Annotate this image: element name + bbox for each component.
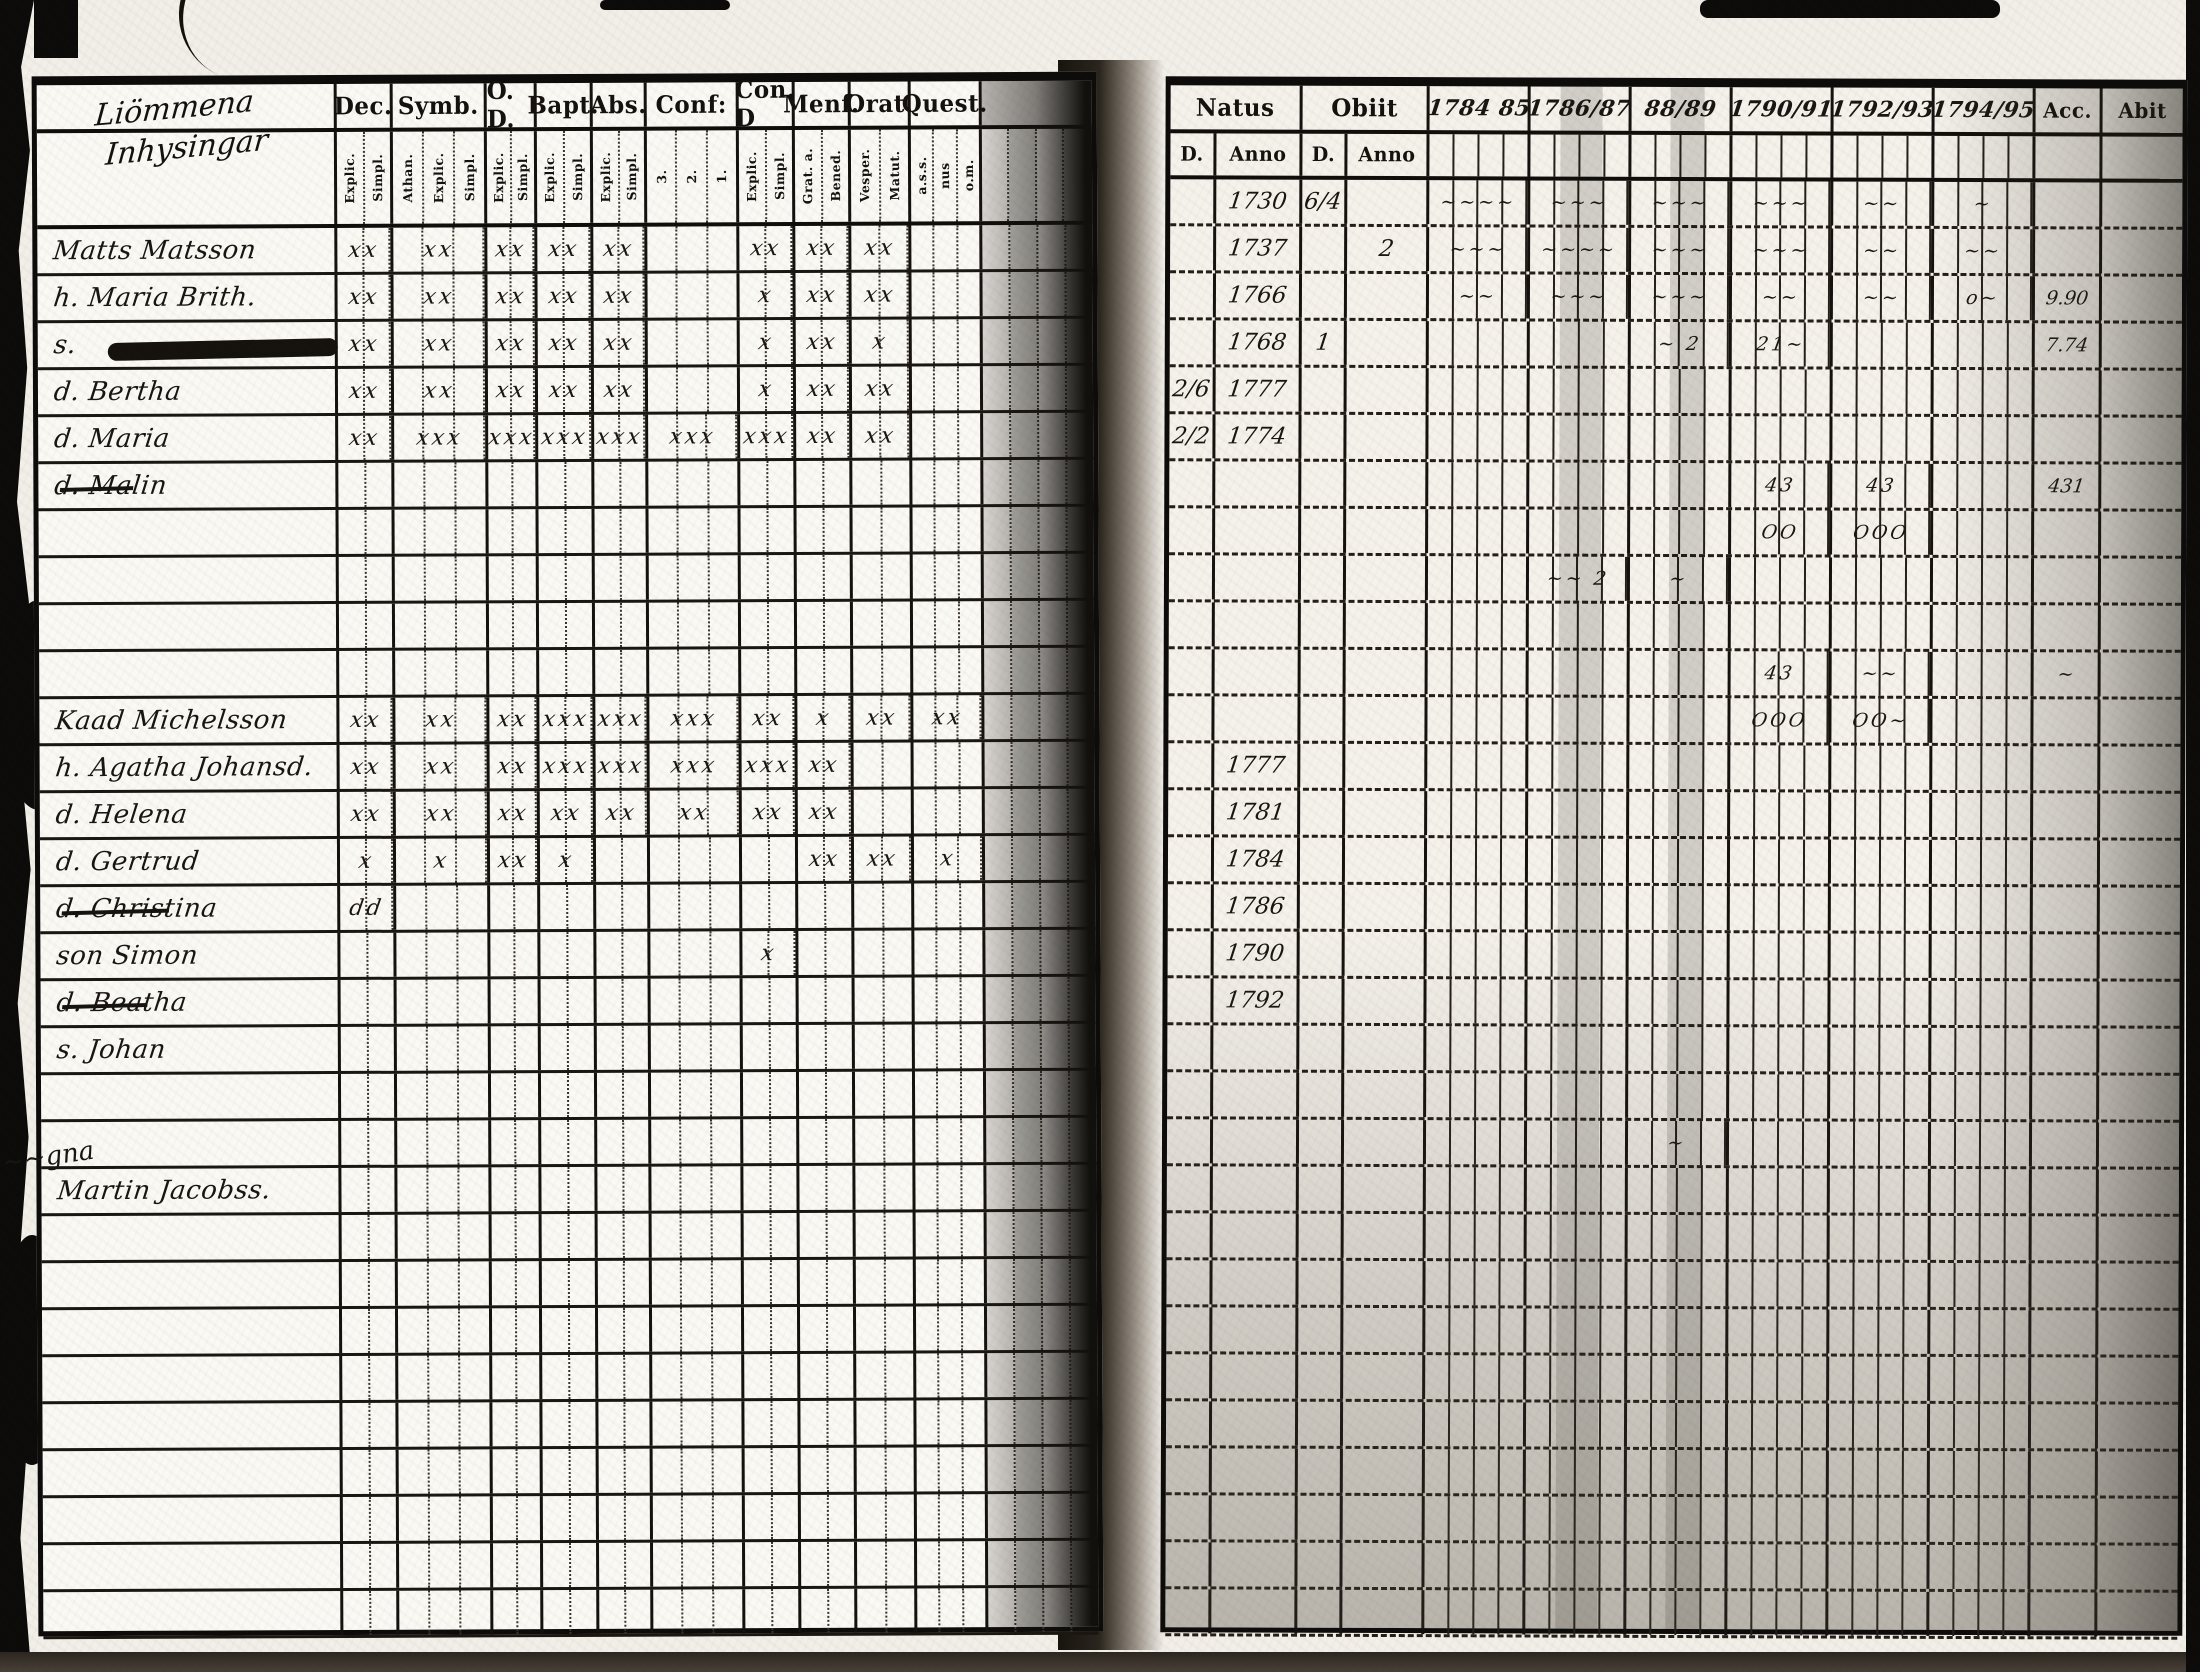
attendance-mark: x <box>736 273 796 317</box>
subcolumn-line <box>683 1401 714 1445</box>
edge-strip-row <box>987 1259 1097 1303</box>
obiit-year-cell <box>1345 838 1427 882</box>
register-row: 4343431 <box>1169 461 2181 512</box>
year-subcolumn-line <box>1529 462 1554 506</box>
year-subcolumn-line <box>1653 1168 1678 1212</box>
mark-cell-group <box>598 1355 652 1399</box>
column-label: Quest. <box>902 89 988 118</box>
communion-mark: ∼ <box>1626 557 1731 601</box>
mark-cell-group <box>857 1447 917 1491</box>
subcolumn-line <box>366 510 392 554</box>
year-subcolumn-line <box>2005 1404 2028 1448</box>
mark-cell-group: xx <box>796 320 852 364</box>
subcolumn-line <box>493 1496 518 1540</box>
natus-day-cell <box>1170 273 1216 317</box>
mark-cell-group: xx <box>490 791 540 835</box>
year-subcolumn-line <box>1907 417 1930 461</box>
edge-strip-cell <box>982 225 1010 269</box>
date-value: 2 <box>1378 236 1396 262</box>
year-subcolumn-line <box>1479 321 1504 365</box>
year-subcolumn-line <box>1957 793 1982 837</box>
subcolumn-line <box>341 980 369 1024</box>
year-subcolumn-line <box>1653 980 1678 1024</box>
mark-cell-group <box>542 1355 598 1399</box>
year-subcolumn-line <box>1677 1497 1702 1541</box>
register-row: d. Helenaxxxxxxxxxxxxxxxx <box>40 789 1095 841</box>
year-subcolumn-line <box>1729 1074 1754 1118</box>
obiit-day-cell <box>1299 1120 1344 1164</box>
year-mark-group <box>1526 1308 1627 1352</box>
subcolumn-line <box>515 932 538 976</box>
subcolumn-group: Explic.Simpl. <box>739 130 795 222</box>
subcolumn-line <box>543 1590 571 1634</box>
year-subcolumn-line <box>1754 1168 1779 1212</box>
mark-cell-group <box>342 1309 398 1353</box>
natus-year-cell <box>1215 555 1301 599</box>
subcolumn-line <box>740 461 768 505</box>
subcolumn-group: Vesper.Matut. <box>851 129 911 221</box>
natus-day-cell <box>1168 696 1214 740</box>
year-subcolumn-line <box>1680 463 1705 507</box>
year-mark-group <box>1932 746 2033 790</box>
subcolumn-label: Vesper. <box>857 149 872 203</box>
year-subcolumn-line <box>1576 1356 1601 1400</box>
subcolumn-line <box>885 1306 913 1350</box>
mark-cell-group <box>394 462 488 506</box>
subcolumn-line <box>826 1025 852 1069</box>
mark-cell-group <box>650 837 742 881</box>
year-subcolumn-line <box>1428 603 1453 647</box>
year-subcolumn-line <box>1856 934 1881 978</box>
natus-year-cell: 1792 <box>1213 978 1299 1022</box>
year-subcolumn-line <box>1678 1074 1703 1118</box>
attendance-mark: xx <box>794 743 854 787</box>
register-row: d. Berthaxxxxxxxxxxxxxxx <box>38 366 1093 418</box>
year-subcolumn-line <box>1627 1309 1652 1353</box>
register-row <box>1166 1495 2178 1546</box>
year-subcolumn-line <box>1527 1073 1552 1117</box>
year-subcolumn-line <box>1856 793 1881 837</box>
subcolumn-line <box>769 837 795 881</box>
subcolumn-line <box>488 509 513 553</box>
subcolumn-line <box>597 979 624 1023</box>
mark-cell-group <box>648 367 740 411</box>
year-subcolumn-line <box>1451 1120 1476 1164</box>
year-subcolumn-line <box>1451 1167 1476 1211</box>
edge-strip-cell <box>1039 413 1067 457</box>
subcolumn-line <box>571 1543 597 1587</box>
edge-strip-row <box>987 1306 1097 1350</box>
year-subcolumn-line <box>1830 1075 1855 1119</box>
mark-cell-group <box>542 1214 598 1258</box>
subcolumn-line <box>457 556 486 600</box>
year-subcolumn-line <box>1603 745 1626 789</box>
subcolumn-line <box>683 1495 714 1539</box>
obiit-year-cell <box>1345 791 1427 835</box>
year-mark-group <box>1530 321 1631 365</box>
obiit-year-cell <box>1346 509 1428 553</box>
subcolumn-line <box>396 886 427 930</box>
subcolumn-line <box>597 1026 624 1070</box>
year-mark-group <box>1428 415 1529 459</box>
subcolumn-line <box>713 1448 742 1492</box>
subcolumn-line <box>856 1307 886 1351</box>
subcolumn-line <box>596 932 623 976</box>
year-subcolumn-line <box>1983 417 2008 461</box>
year-subcolumn-line <box>1704 839 1727 883</box>
register-row: OOOOO∼ <box>1168 696 2180 747</box>
edge-strip-cell <box>1011 460 1039 504</box>
year-subcolumn-line <box>1451 979 1476 1023</box>
mark-cell-group <box>341 1168 397 1212</box>
year-subcolumn-line <box>1680 416 1705 460</box>
year-subcolumn-line <box>1576 1450 1601 1494</box>
year-mark-group <box>1529 650 1630 694</box>
subcolumn-line <box>539 650 567 694</box>
year-subcolumn-line <box>1879 1498 1904 1542</box>
mark-cell-group <box>543 1543 599 1587</box>
year-mark-group: OOO <box>1832 511 1933 555</box>
subcolumn-line <box>541 979 569 1023</box>
subcolumn-line <box>963 1353 985 1397</box>
person-name: d. Malin <box>53 471 169 502</box>
register-row: d. Malin <box>38 460 1093 512</box>
year-subcolumn-line <box>1730 886 1755 930</box>
subcolumn-line <box>828 1354 854 1398</box>
year-mark-group <box>1728 1450 1829 1494</box>
acc-label: Acc. <box>2043 98 2092 123</box>
subcolumn-line <box>624 1308 649 1352</box>
subcolumn-line <box>517 1449 540 1493</box>
mark-cell-group <box>649 649 741 693</box>
year-subcolumn-line <box>1679 886 1704 930</box>
subcolumn-line <box>542 1261 570 1305</box>
year-mark-group: OOO <box>1730 698 1831 742</box>
edge-strip-cell <box>987 1353 1015 1397</box>
mark-cell-group <box>539 603 595 647</box>
mark-cell-group: xx <box>489 697 539 741</box>
row-name-cell: d. Helena <box>40 792 340 837</box>
mark-cell-group <box>648 461 740 505</box>
acc-head: Acc. <box>2036 88 2103 132</box>
year-subcolumn-line <box>1428 556 1453 600</box>
mark-cell-group <box>916 1353 987 1397</box>
year-subcolumn-line <box>1956 1028 1981 1072</box>
register-row <box>42 1212 1097 1264</box>
year-subcolumn-line <box>2007 887 2030 931</box>
year-subcolumn-line <box>1779 1027 1804 1071</box>
year-subcolumn-line <box>1854 1357 1879 1401</box>
subcolumn-line <box>939 1165 963 1209</box>
year-subcolumn-line <box>1475 1496 1500 1540</box>
subcolumn-head: Explic. <box>337 132 365 224</box>
natus-year-cell <box>1212 1260 1298 1304</box>
attendance-mark: xx <box>738 790 798 834</box>
mark-cell-group <box>648 508 740 552</box>
subcolumn-line <box>515 885 538 929</box>
year-subcolumn-line <box>1777 1544 1802 1588</box>
edge-strip-cell <box>1069 883 1095 927</box>
year-mark-group: 43 <box>1832 464 1933 508</box>
year-subcolumn-line <box>1652 1309 1677 1353</box>
mark-cell-group: xx <box>741 696 797 740</box>
year-subcolumn-line <box>1601 1450 1624 1494</box>
abit-cell <box>2100 887 2180 931</box>
year-subcolumn-line <box>1778 1403 1803 1447</box>
subcolumn-line <box>935 413 959 457</box>
subcolumn-line <box>796 461 824 505</box>
person-name: Kaad Michelsson <box>54 705 289 736</box>
attendance-mark: xx <box>336 745 396 789</box>
acc-cell: 9.90 <box>2035 276 2102 320</box>
year-subcolumn-line <box>1879 1451 1904 1495</box>
subcolumn-line <box>651 1120 682 1164</box>
subcolumn-line <box>853 602 883 646</box>
date-value: 1781 <box>1225 799 1287 825</box>
year-subcolumn-line <box>1604 510 1627 554</box>
subcolumn-line <box>855 1166 885 1210</box>
year-subcolumn-line <box>1553 792 1578 836</box>
year-subcolumn-line <box>1958 652 1983 696</box>
subcolumn-line <box>770 1072 796 1116</box>
communion-mark: OO∼ <box>1828 699 1933 743</box>
subcolumn-line <box>430 1543 461 1587</box>
edge-strip-cell <box>987 1259 1015 1303</box>
communion-mark: ∼∼∼ <box>1527 181 1632 225</box>
year-mark-group <box>1728 1356 1829 1400</box>
year-subcolumn-line <box>1651 1591 1676 1635</box>
subcolumn-head: Bened. <box>822 130 848 222</box>
edge-strip-cell <box>1043 1400 1071 1444</box>
mark-cell-group <box>745 1589 801 1633</box>
year-subcolumn-line <box>1702 1497 1725 1541</box>
year-label: 1794/95 <box>1930 97 2037 123</box>
year-mark-group <box>1930 1263 2031 1307</box>
subcolumn-group: 3.2.1. <box>647 130 739 222</box>
abit-cell <box>2097 1545 2177 1589</box>
year-mark-group <box>1627 1262 1728 1306</box>
mark-cell-group: xx <box>594 368 648 412</box>
year-subcolumn-line <box>1580 322 1605 366</box>
mark-cell-group <box>543 1590 599 1634</box>
mark-cell-group <box>493 1496 543 1540</box>
year-subcolumn-line <box>1704 698 1727 742</box>
subcolumn-line <box>710 602 739 646</box>
year-subcolumn-line <box>1804 980 1827 1024</box>
year-subcolumn-line <box>1701 1591 1724 1635</box>
year-subcolumn-line <box>1500 1449 1523 1493</box>
year-subcolumn-line <box>1477 838 1502 882</box>
mark-cell-group <box>743 1025 799 1069</box>
year-subcolumn-line <box>1679 792 1704 836</box>
year-subcolumn-line <box>1754 980 1779 1024</box>
mark-cell-group: xx <box>396 791 490 835</box>
year-mark-group <box>1426 1167 1527 1211</box>
year-mark-group <box>1525 1543 1626 1587</box>
subcolumn-line <box>430 1590 461 1634</box>
subcolumn-line <box>914 742 938 786</box>
subcolumn-line <box>828 1448 854 1492</box>
edge-strip-cell <box>1043 1259 1071 1303</box>
subcolumn-line <box>460 1261 489 1305</box>
mark-cell-group <box>911 225 982 269</box>
year-subcolumn-line <box>1957 746 1982 790</box>
year-subcolumn-line <box>1854 1310 1879 1354</box>
mark-cell-group: xx <box>851 225 911 269</box>
date-value: 6/4 <box>1303 189 1343 215</box>
edge-strip-row <box>983 507 1093 551</box>
year-mark-group <box>1530 368 1631 412</box>
subcolumn-line <box>566 556 592 600</box>
mark-cell-group <box>653 1448 745 1492</box>
subcolumn-line <box>343 1497 371 1541</box>
year-mark-group <box>1729 1121 1830 1165</box>
communion-mark: 43 <box>1727 651 1832 695</box>
year-subcolumn-head <box>1732 135 1757 177</box>
obiit-day-cell <box>1298 1402 1343 1446</box>
subcolumn-group: Explic.Simpl. <box>593 131 647 223</box>
mark-cell-group: xxx <box>649 696 741 740</box>
year-subcolumn-line <box>1982 887 2007 931</box>
year-mark-group <box>1931 1028 2032 1072</box>
year-subcolumn-line <box>1828 1545 1853 1589</box>
year-subcolumn-line <box>1906 840 1929 884</box>
subcolumn-line <box>343 1450 371 1494</box>
year-subcolumn-line <box>1627 1403 1652 1447</box>
edge-strip-cell <box>987 1306 1015 1350</box>
mark-cell-group <box>343 1591 399 1635</box>
year-subcolumn-line <box>1755 933 1780 977</box>
subcolumn-line <box>369 1168 395 1212</box>
attendance-mark: xx <box>392 791 490 835</box>
attendance-mark: xxx <box>591 415 649 459</box>
obiit-day-cell <box>1300 791 1345 835</box>
edge-strip-cell <box>1016 1541 1044 1585</box>
mark-cell-group <box>542 1402 598 1446</box>
year-subcolumn-line <box>1653 1074 1678 1118</box>
mark-cell-group <box>917 1541 988 1585</box>
year-mark-group <box>1933 605 2034 649</box>
subcolumn-line <box>652 1308 683 1352</box>
mark-cell-group <box>800 1213 856 1257</box>
year-subcolumn-line <box>1630 604 1655 648</box>
year-subcolumn-line <box>1627 1262 1652 1306</box>
subcolumn-line <box>540 885 568 929</box>
year-subcolumn-line <box>1428 462 1453 506</box>
row-name-cell: d. Christina <box>40 886 340 931</box>
obiit-year-cell <box>1343 1308 1425 1352</box>
edge-strip-cell <box>986 977 1014 1021</box>
edge-strip-cell <box>1039 366 1067 410</box>
year-subcolumn-line <box>1956 981 1981 1025</box>
edge-strip-cell <box>1039 319 1067 363</box>
attendance-mark: xx <box>792 320 852 364</box>
subcolumn-line <box>340 933 368 977</box>
obiit-day-cell <box>1302 274 1347 318</box>
year-mark-group <box>1731 416 1832 460</box>
attendance-mark: xx <box>738 696 798 740</box>
subcolumn-line <box>648 509 679 553</box>
year-subcolumn-line <box>1779 1074 1804 1118</box>
year-subcolumn-line <box>2007 746 2030 790</box>
acc-cell <box>2031 1404 2098 1448</box>
edge-strip-cell <box>985 930 1013 974</box>
date-value: 1737 <box>1227 235 1289 261</box>
natus-day-cell <box>1167 1072 1213 1116</box>
subcolumn-line <box>621 462 646 506</box>
subcolumn-line <box>882 461 910 505</box>
mark-cell-group <box>797 602 853 646</box>
year-subcolumn-line <box>1626 1591 1651 1635</box>
mark-cell-group <box>342 1356 398 1400</box>
subcolumn-line <box>827 1260 853 1304</box>
year-subcolumn-line <box>1502 885 1525 929</box>
subcolumn-line <box>541 1073 569 1117</box>
subcolumn-line <box>541 1120 569 1164</box>
subcolumn-line <box>338 463 366 507</box>
year-subcolumn-line <box>1528 791 1553 835</box>
mark-cell-group <box>651 978 743 1022</box>
year-subcolumn-line <box>1727 1544 1752 1588</box>
year-subcolumn-line <box>1958 417 1983 461</box>
year-subcolumn-line <box>1478 650 1503 694</box>
register-row: d. Gertrudxxxxxxxxxx <box>40 836 1095 888</box>
mark-cell-group <box>852 460 912 504</box>
edge-strip-cell <box>1040 648 1068 692</box>
attendance-mark: xxx <box>646 696 742 740</box>
natus-year-cell <box>1213 1213 1299 1257</box>
obiit-day-cell <box>1301 415 1346 459</box>
edge-strip-cell <box>1009 129 1037 221</box>
subcolumn-line <box>827 1166 853 1210</box>
obiit-day-cell <box>1299 1026 1344 1070</box>
year-subcolumn-line <box>1904 1310 1927 1354</box>
year-subcolumn-line <box>1779 1168 1804 1212</box>
abit-cell <box>2097 1592 2177 1636</box>
mark-cell-group <box>916 1306 987 1350</box>
year-subcolumn-line <box>1477 744 1502 788</box>
row-name-cell: Matts Matsson <box>37 228 337 273</box>
subcolumn-line <box>396 933 427 977</box>
year-mark-group <box>1831 746 1932 790</box>
attendance-mark: xx <box>534 227 594 271</box>
year-subcolumn-line <box>2005 1498 2028 1542</box>
year-subcolumn-line <box>1882 417 1907 461</box>
year-subcolumn-line <box>1930 1404 1955 1448</box>
subcolumn-line <box>714 1589 743 1633</box>
year-subcolumn-line <box>1857 558 1882 602</box>
subcolumn-line <box>342 1356 370 1400</box>
acc-cell <box>2032 1075 2099 1119</box>
year-subcolumn-line <box>1477 697 1502 741</box>
year-subcolumn-line <box>2007 793 2030 837</box>
mark-cell-group: xx <box>796 367 852 411</box>
mark-cell-group <box>741 555 797 599</box>
mark-cell-group <box>915 1071 986 1115</box>
mark-cell-group <box>339 604 395 648</box>
register-row: 17306/4∼∼∼∼∼∼∼∼∼∼∼∼∼∼∼∼ <box>1170 179 2182 230</box>
natus-day-cell <box>1165 1589 1211 1633</box>
date-subhead: Anno <box>1216 133 1302 175</box>
subcolumn-line <box>461 1449 490 1493</box>
natus-day-cell <box>1165 1542 1211 1586</box>
subcolumn-line <box>458 932 487 976</box>
year-subcolumn-line <box>1729 980 1754 1024</box>
attendance-mark: xx <box>486 697 540 741</box>
subcolumn-head: Vesper. <box>851 130 881 222</box>
edge-strip-row <box>983 366 1093 410</box>
abit-cell <box>2098 1263 2178 1307</box>
